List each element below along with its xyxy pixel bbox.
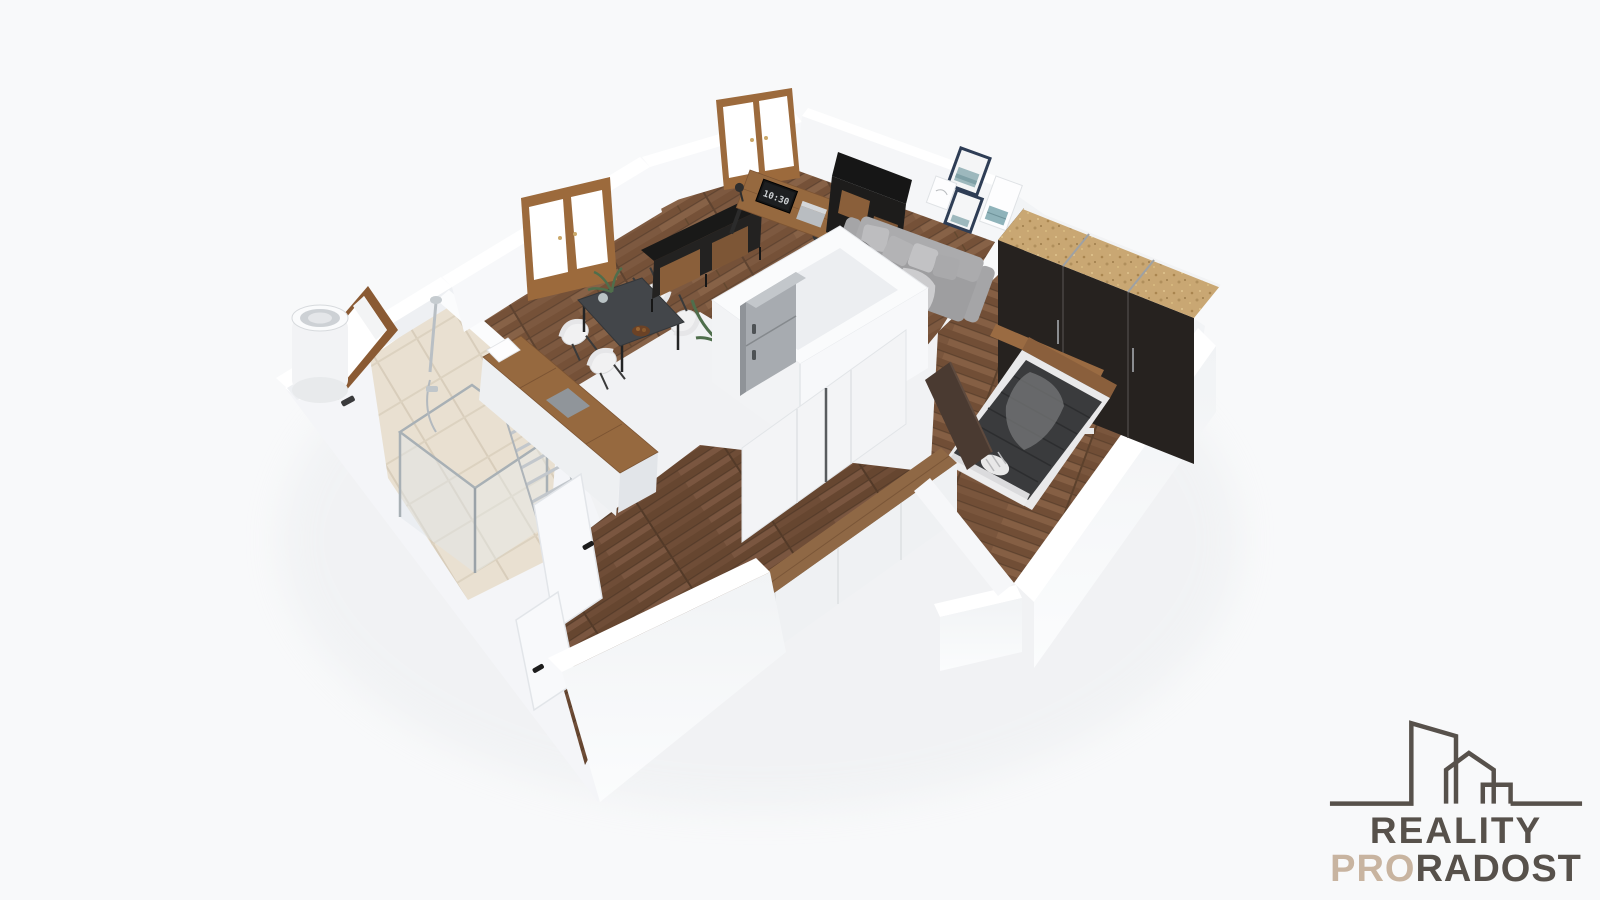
logo-text-line1: REALITY — [1370, 812, 1542, 849]
logo-text-accent: PRO — [1330, 848, 1415, 890]
water-heater — [292, 305, 348, 403]
agency-logo: REALITY PRORADOST — [1318, 698, 1594, 898]
logo-text-rest: RADOST — [1415, 848, 1581, 890]
fruit-bowl — [632, 326, 650, 337]
floorplan-render-page: 10:30 — [0, 0, 1600, 900]
shower-head — [430, 296, 442, 304]
logo-text-line2: PRORADOST — [1330, 849, 1582, 891]
window-upper-left — [521, 177, 617, 301]
shower-mixer — [426, 386, 438, 392]
building-skyline-icon — [1322, 698, 1590, 810]
